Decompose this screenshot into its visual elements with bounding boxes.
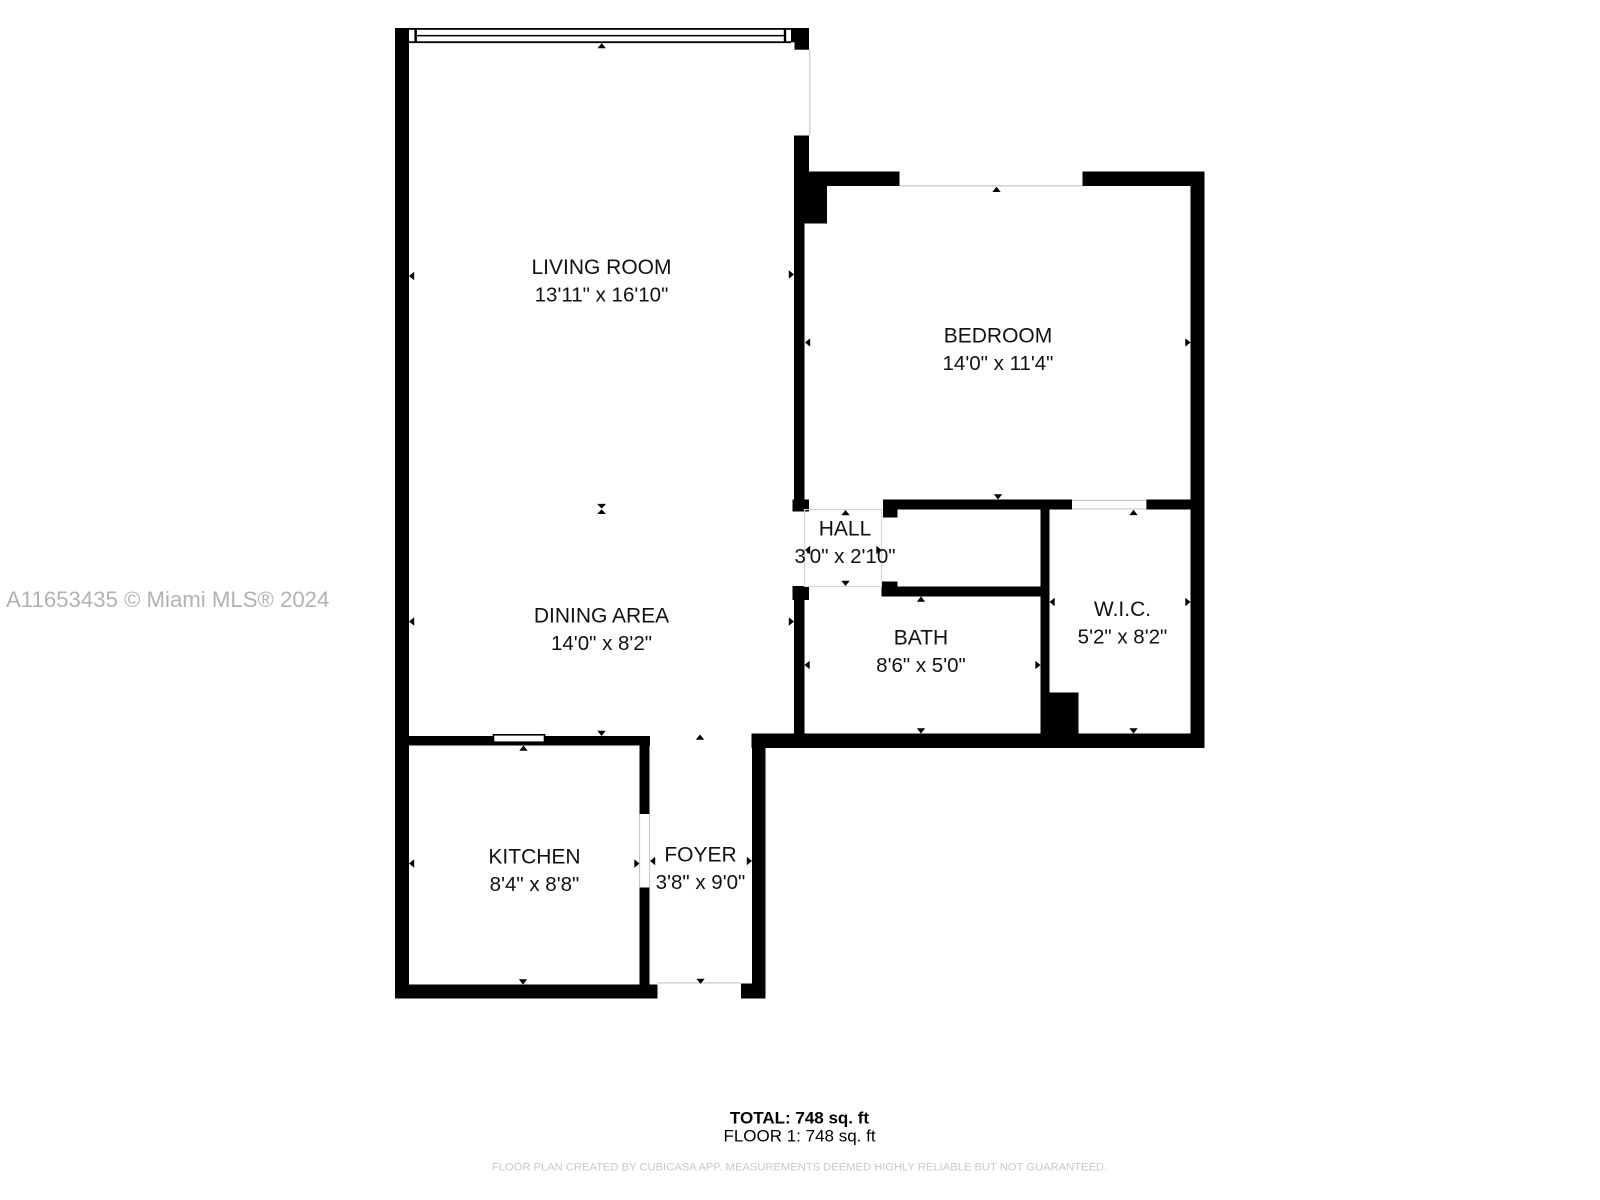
svg-text:FOYER: FOYER bbox=[664, 844, 736, 867]
svg-text:FLOOR 1: 748 sq. ft: FLOOR 1: 748 sq. ft bbox=[723, 1127, 875, 1146]
svg-text:W.I.C.: W.I.C. bbox=[1094, 598, 1151, 621]
svg-text:BEDROOM: BEDROOM bbox=[944, 324, 1053, 347]
svg-text:A11653435 © Miami MLS® 2024: A11653435 © Miami MLS® 2024 bbox=[6, 587, 329, 612]
svg-text:FLOOR PLAN CREATED BY CUBICASA: FLOOR PLAN CREATED BY CUBICASA APP. MEAS… bbox=[492, 1162, 1107, 1174]
svg-text:3'8" x 9'0": 3'8" x 9'0" bbox=[656, 871, 746, 894]
svg-text:5'2" x 8'2": 5'2" x 8'2" bbox=[1078, 626, 1168, 649]
svg-text:KITCHEN: KITCHEN bbox=[488, 845, 580, 868]
svg-text:14'0" x 8'2": 14'0" x 8'2" bbox=[551, 632, 652, 655]
svg-text:TOTAL: 748 sq. ft: TOTAL: 748 sq. ft bbox=[730, 1108, 870, 1127]
svg-text:14'0" x 11'4": 14'0" x 11'4" bbox=[943, 352, 1054, 375]
svg-text:3'0" x 2'10": 3'0" x 2'10" bbox=[794, 545, 895, 568]
svg-text:8'6" x 5'0": 8'6" x 5'0" bbox=[876, 654, 966, 677]
svg-text:DINING AREA: DINING AREA bbox=[534, 604, 669, 627]
svg-text:13'11" x 16'10": 13'11" x 16'10" bbox=[535, 284, 669, 307]
svg-text:LIVING ROOM: LIVING ROOM bbox=[531, 256, 671, 279]
svg-text:BATH: BATH bbox=[894, 626, 948, 649]
svg-text:HALL: HALL bbox=[819, 518, 872, 541]
svg-text:8'4" x 8'8": 8'4" x 8'8" bbox=[490, 873, 580, 896]
